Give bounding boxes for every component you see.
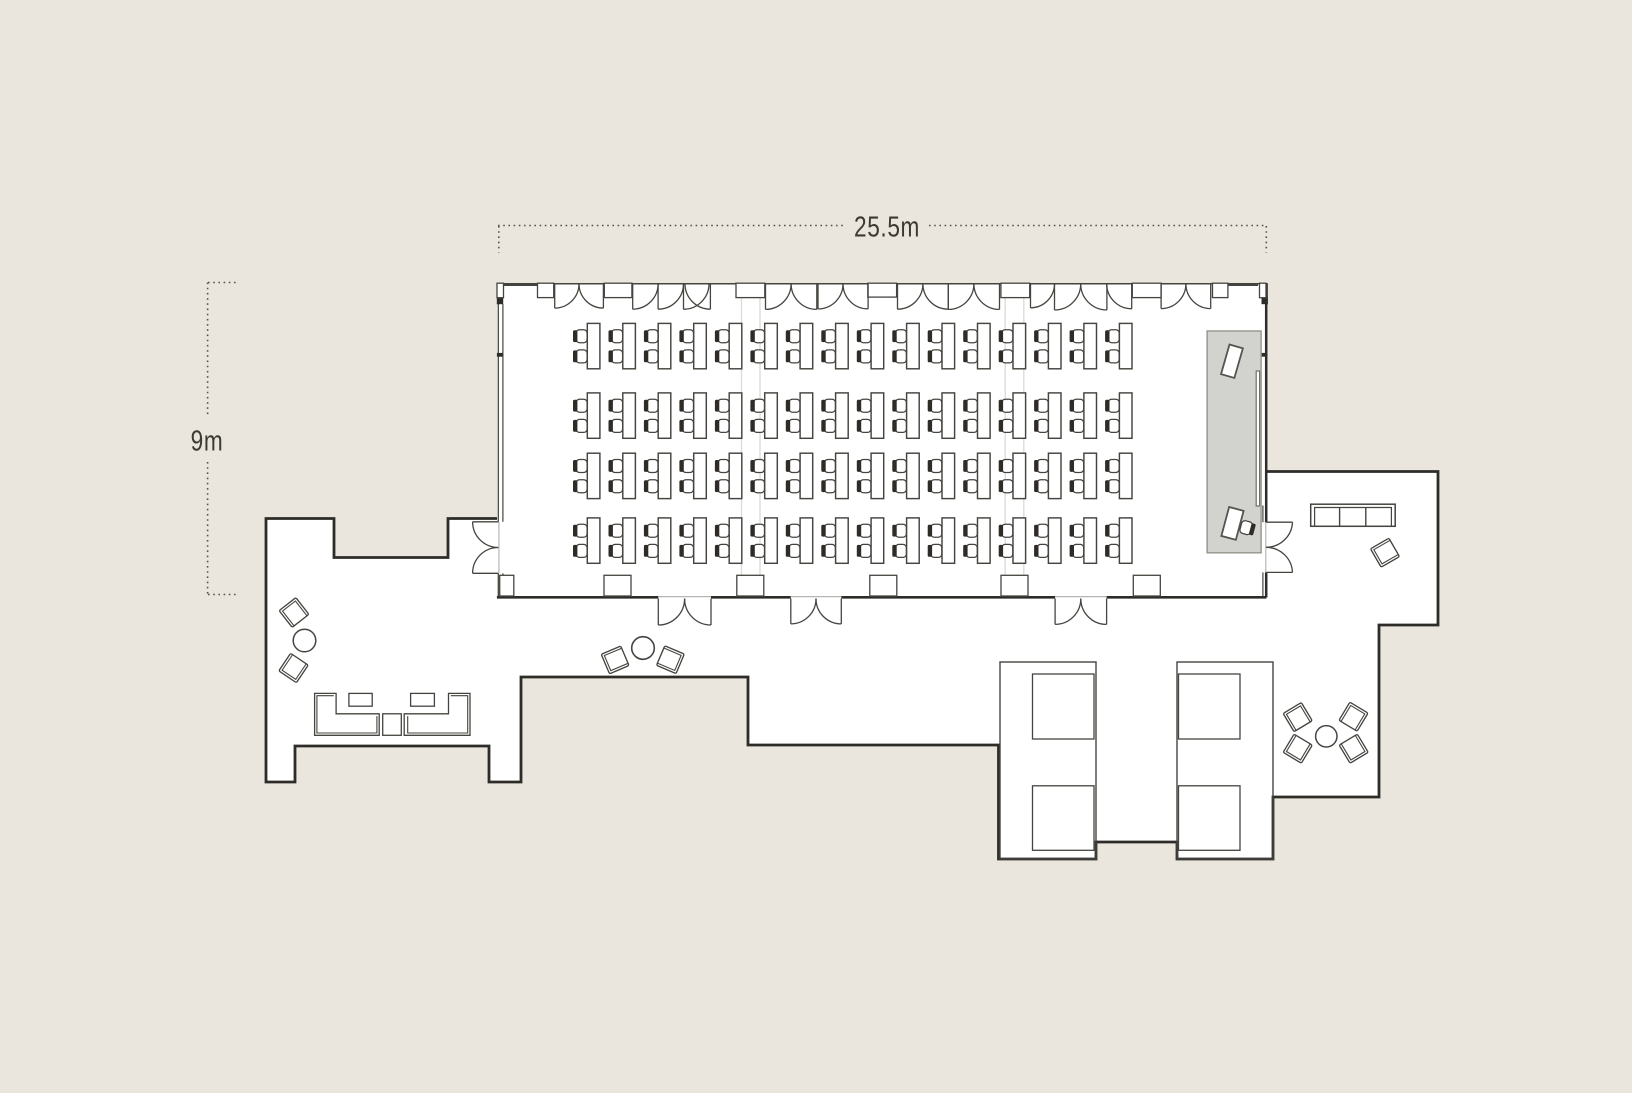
svg-text:9m: 9m bbox=[191, 424, 224, 457]
svg-text:25.5m: 25.5m bbox=[854, 210, 920, 243]
